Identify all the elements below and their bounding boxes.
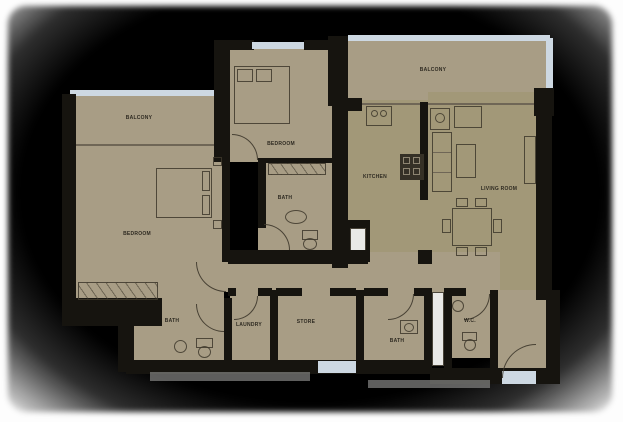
wall-corridor-top-a bbox=[228, 250, 368, 264]
dining-chair-1 bbox=[456, 198, 468, 207]
exterior-stub-right bbox=[368, 380, 490, 388]
stove-burner-1 bbox=[403, 157, 410, 164]
bedroom-label: BEDROOM bbox=[267, 141, 295, 147]
laundry-label: LAUNDRY bbox=[236, 322, 262, 328]
balcony-left-slider-line bbox=[76, 144, 214, 146]
living-room-label: LIVING ROOM bbox=[481, 186, 517, 192]
stove-burner-4 bbox=[413, 168, 420, 175]
kitchen-sink-basin-2 bbox=[380, 110, 387, 117]
wall-corridor-top-b bbox=[418, 250, 432, 264]
wc-sink bbox=[452, 300, 464, 312]
store-label: STORE bbox=[297, 319, 315, 325]
dining-chair-4 bbox=[475, 247, 487, 256]
tv-unit bbox=[524, 136, 536, 184]
kitchen-sink-basin-1 bbox=[371, 110, 378, 117]
master-wardrobe bbox=[78, 282, 158, 300]
bath-left-toilet-bowl bbox=[198, 346, 211, 358]
balcony-left-floor bbox=[66, 96, 226, 146]
wall-right-exterior bbox=[536, 92, 552, 300]
bath-mid-sink bbox=[404, 323, 414, 332]
fridge-divider-2 bbox=[433, 172, 451, 173]
master-nightstand-2 bbox=[213, 220, 222, 229]
master-nightstand-1 bbox=[213, 157, 222, 166]
wall-store-bath-divider bbox=[356, 290, 364, 360]
floor-plan-image: BALCONY BEDROOM BEDROOM BATH BALCONY KIT… bbox=[0, 0, 623, 422]
exterior-stub-left bbox=[150, 372, 310, 381]
wall-bedroom-top-a bbox=[226, 40, 254, 50]
wc-label: W.C. bbox=[464, 318, 476, 324]
balcony-right-glass-side bbox=[546, 38, 553, 92]
wc-toilet-bowl bbox=[464, 339, 476, 351]
bath-mid-label: BATH bbox=[390, 338, 405, 344]
bedroom-window bbox=[252, 42, 306, 49]
wall-bath-mid-top-a bbox=[364, 288, 388, 296]
wall-foyer-left bbox=[490, 290, 498, 380]
kitchen-label: KITCHEN bbox=[363, 174, 387, 180]
cabinet-top bbox=[454, 106, 482, 128]
wall-bottom-left-band bbox=[62, 298, 162, 326]
balcony-right-glass-rail bbox=[348, 35, 550, 41]
fridge-unit bbox=[432, 132, 452, 192]
store-floor bbox=[276, 290, 356, 364]
kitchen-sink-unit bbox=[366, 106, 392, 126]
wall-laundry-store-divider bbox=[270, 290, 278, 364]
wall-left-exterior bbox=[62, 94, 76, 312]
wall-bedroom-left bbox=[214, 40, 230, 162]
bath-left-sink bbox=[174, 340, 187, 353]
master-bed-pillow-2 bbox=[202, 195, 210, 215]
wall-shaft-right bbox=[444, 288, 452, 370]
bath-left-label: BATH bbox=[165, 318, 180, 324]
wall-bedroom-balcony-divider bbox=[328, 36, 348, 106]
wall-store-top-a bbox=[276, 288, 302, 296]
stove-burner-2 bbox=[413, 157, 420, 164]
wall-bath-top-left bbox=[258, 158, 266, 228]
balcony-right-slider-line bbox=[362, 103, 534, 105]
balcony-right-label: BALCONY bbox=[420, 67, 446, 73]
wall-bath-left-right bbox=[224, 298, 232, 364]
wall-store-top-b bbox=[330, 288, 356, 296]
service-door-opening bbox=[318, 361, 356, 373]
bath-top-sink bbox=[285, 210, 307, 224]
wall-shaft-left bbox=[424, 288, 432, 370]
dining-chair-5 bbox=[442, 219, 451, 233]
dining-chair-3 bbox=[456, 247, 468, 256]
stove-burner-3 bbox=[403, 168, 410, 175]
balcony-left-label: BALCONY bbox=[126, 115, 152, 121]
bath-top-toilet-bowl bbox=[303, 238, 317, 250]
fridge-divider-1 bbox=[433, 152, 451, 153]
dining-chair-2 bbox=[475, 198, 487, 207]
bath-top-label: BATH bbox=[278, 195, 293, 201]
dining-table bbox=[452, 208, 492, 246]
wall-kitchen-right bbox=[420, 102, 428, 200]
balcony-left-glass-rail bbox=[70, 90, 224, 96]
counter-unit bbox=[456, 144, 476, 178]
appliance-dial bbox=[435, 113, 445, 123]
wall-master-right bbox=[222, 146, 230, 262]
wall-laundry-top-a bbox=[228, 288, 236, 296]
master-bedroom-label: BEDROOM bbox=[123, 231, 151, 237]
master-bed-pillow-1 bbox=[202, 171, 210, 191]
bedroom-bed-pillow-1 bbox=[237, 69, 253, 82]
dining-chair-6 bbox=[493, 219, 502, 233]
bedroom-bed-pillow-2 bbox=[256, 69, 272, 82]
bedroom-wardrobe bbox=[268, 163, 326, 175]
service-shaft bbox=[432, 292, 444, 366]
